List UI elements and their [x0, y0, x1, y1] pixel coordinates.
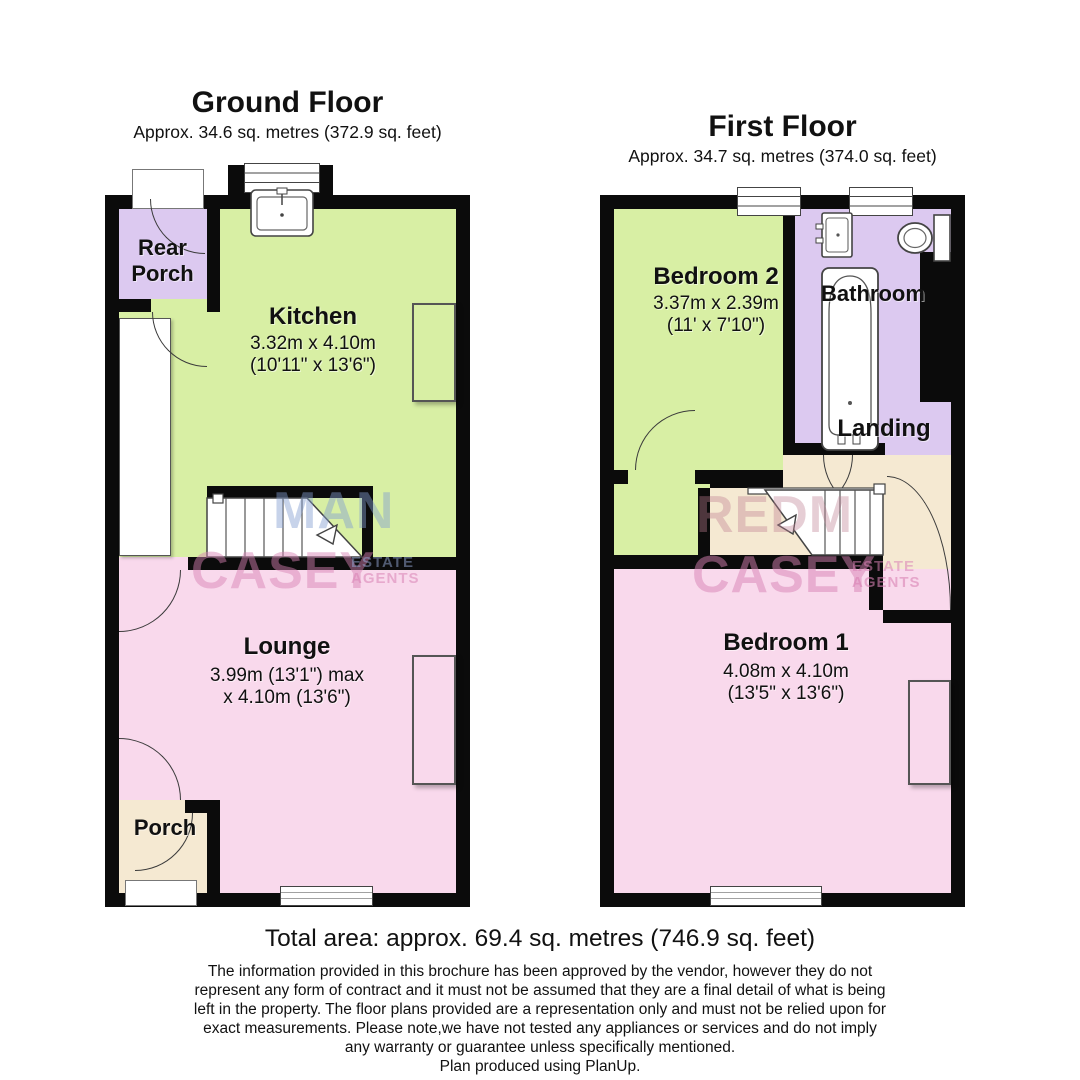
total-area-text: Total area: approx. 69.4 sq. metres (746… [0, 925, 1080, 953]
first-floor-title: First Floor [600, 110, 965, 144]
first-floor-plan: Bedroom 2 3.37m x 2.39m (11' x 7'10") Ba… [600, 163, 965, 907]
bedroom2-bottom-wall [695, 470, 783, 484]
bathroom-void-block [920, 252, 951, 402]
kitchen-lounge-wall [188, 557, 456, 570]
kitchen-dims-1: 3.32m x 4.10m [213, 333, 413, 355]
bedroom1-dims-2: (13'5" x 13'6") [686, 683, 886, 705]
bathroom-window [849, 187, 913, 216]
stairs-left-wall [698, 488, 710, 555]
porch-entry-door [125, 880, 197, 906]
porch-label: Porch [119, 815, 211, 841]
lounge-dims-2: x 4.10m (13'6") [187, 687, 387, 709]
ground-floor-plan: Rear Porch Kitchen 3.32m x 4.10m (10'11"… [105, 163, 470, 907]
lounge-label: Lounge [187, 633, 387, 661]
bedroom1-alcove [908, 680, 951, 785]
bedroom2-wall-stub [614, 470, 628, 484]
bathroom-bottom-wall [795, 443, 885, 455]
disclaimer-line: exact measurements. Please note,we have … [0, 1020, 1080, 1038]
bedroom1-dims-1: 4.08m x 4.10m [686, 661, 886, 683]
bedroom2-floor [614, 209, 783, 470]
kitchen-dims-2: (10'11" x 13'6") [213, 355, 413, 377]
disclaimer-line: left in the property. The floor plans pr… [0, 1001, 1080, 1019]
rear-porch-label: Rear Porch [115, 235, 210, 287]
porch-right-wall [207, 800, 220, 893]
lounge-alcove [412, 655, 456, 785]
disclaimer-line: represent any form of contract and it mu… [0, 982, 1080, 1000]
rear-porch-bottom-wall [105, 299, 151, 312]
plan-credit-text: Plan produced using PlanUp. [0, 1058, 1080, 1076]
bedroom2-dims-1: 3.37m x 2.39m [616, 293, 816, 315]
stairs-top-wall [207, 486, 373, 498]
bedroom2-window [737, 187, 801, 216]
floorplan-page: Ground Floor Approx. 34.6 sq. metres (37… [0, 0, 1080, 1080]
under-stairs-wall [614, 555, 883, 568]
bedroom1-landing-wall [883, 610, 951, 623]
bedroom2-dims-2: (11' x 7'10") [616, 315, 816, 337]
disclaimer-line: any warranty or guarantee unless specifi… [0, 1039, 1080, 1057]
kitchen-worktop-unit [119, 318, 171, 556]
landing-label: Landing [800, 415, 968, 443]
ground-floor-area: Approx. 34.6 sq. metres (372.9 sq. feet) [75, 122, 500, 143]
kitchen-window [244, 163, 320, 193]
lounge-dims-1: 3.99m (13'1") max [187, 665, 387, 687]
bedroom2-label: Bedroom 2 [616, 263, 816, 291]
disclaimer-line: The information provided in this brochur… [0, 963, 1080, 981]
bedroom1-label: Bedroom 1 [686, 629, 886, 657]
lounge-window [280, 886, 373, 906]
landing-vertical-wall [869, 555, 883, 610]
kitchen-alcove [412, 303, 456, 402]
bedroom1-window [710, 886, 822, 906]
bathroom-label: Bathroom [793, 281, 953, 307]
kitchen-label: Kitchen [213, 303, 413, 331]
ground-floor-title: Ground Floor [105, 86, 470, 120]
